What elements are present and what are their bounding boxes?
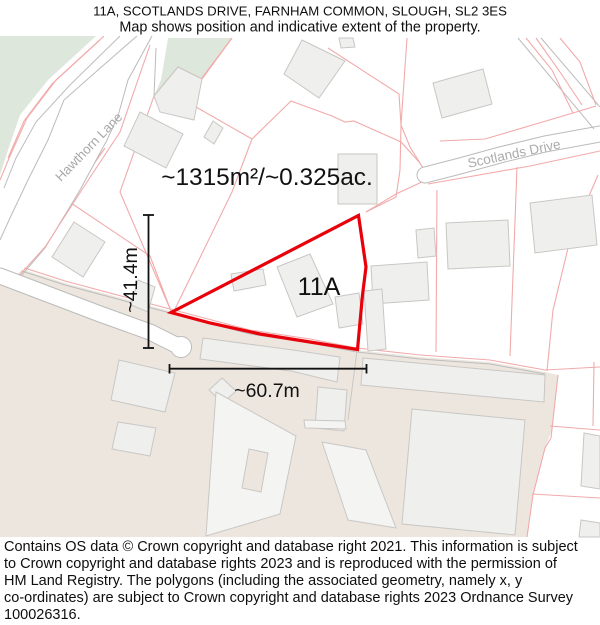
svg-text:to Crown copyright and databas: to Crown copyright and database rights 2… bbox=[4, 556, 558, 572]
svg-text:Map shows position and indicat: Map shows position and indicative extent… bbox=[119, 20, 480, 36]
svg-text:~1315m²/~0.325ac.: ~1315m²/~0.325ac. bbox=[161, 164, 373, 191]
svg-text:HM Land Registry. The polygons: HM Land Registry. The polygons (includin… bbox=[4, 573, 523, 589]
svg-text:11A, SCOTLANDS DRIVE, FARNHAM: 11A, SCOTLANDS DRIVE, FARNHAM COMMON, SL… bbox=[93, 4, 507, 19]
svg-text:~41.4m: ~41.4m bbox=[120, 247, 142, 313]
svg-text:~60.7m: ~60.7m bbox=[234, 380, 300, 402]
svg-text:co-ordinates) are subject to C: co-ordinates) are subject to Crown copyr… bbox=[4, 590, 574, 606]
svg-text:Contains OS data © Crown copyr: Contains OS data © Crown copyright and d… bbox=[4, 539, 578, 555]
svg-text:11A: 11A bbox=[298, 273, 341, 301]
svg-text:100026316.: 100026316. bbox=[4, 607, 81, 623]
